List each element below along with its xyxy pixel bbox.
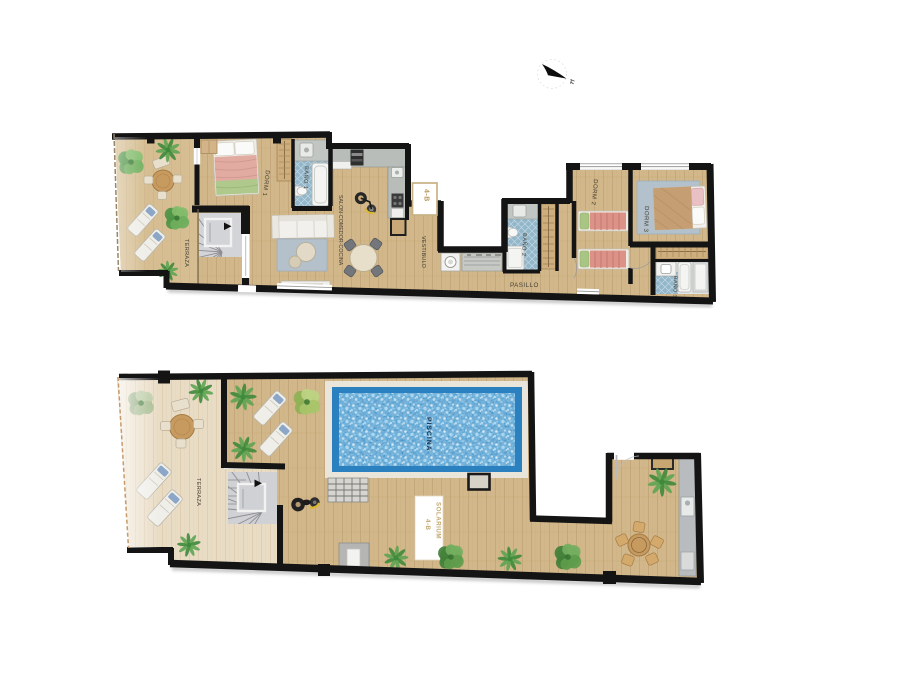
svg-text:BAÑO 3: BAÑO 3 <box>671 276 679 298</box>
svg-text:PASILLO: PASILLO <box>510 282 539 289</box>
svg-text:PISCINA: PISCINA <box>425 417 432 452</box>
svg-text:TERRAZA: TERRAZA <box>195 478 201 506</box>
svg-text:BAÑO 1: BAÑO 1 <box>302 166 310 190</box>
svg-text:BAÑO 2: BAÑO 2 <box>520 233 528 257</box>
svg-text:VESTIBULO: VESTIBULO <box>420 236 426 268</box>
svg-text:TERRAZA: TERRAZA <box>183 239 189 267</box>
svg-text:4-B: 4-B <box>423 189 430 202</box>
svg-text:SALON-COMEDOR-COCINA: SALON-COMEDOR-COCINA <box>337 195 343 266</box>
svg-text:4-B: 4-B <box>424 519 431 531</box>
svg-text:DORM 3: DORM 3 <box>642 206 649 233</box>
svg-text:SOLARIUM: SOLARIUM <box>435 502 442 539</box>
